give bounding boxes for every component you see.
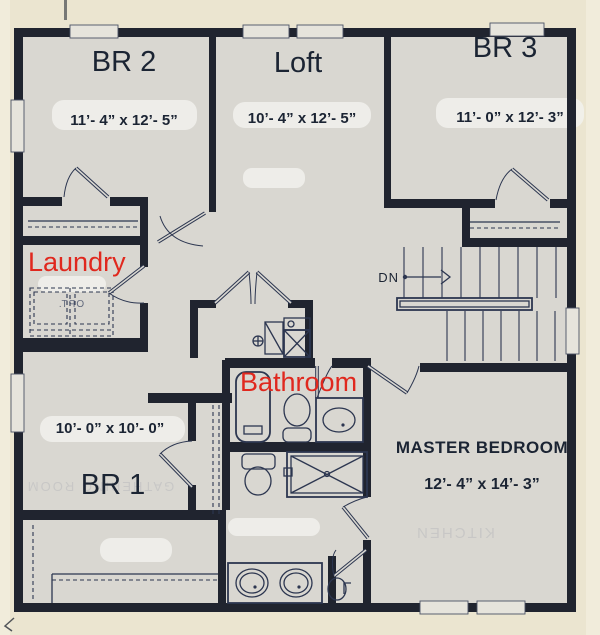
window <box>70 25 118 38</box>
master-bedroom-label: MASTER BEDROOM <box>396 438 568 457</box>
floor-plan-drawing: OPT. DN <box>0 0 600 635</box>
br1-dims: 10’- 0” x 10’- 0” <box>56 420 164 437</box>
paper-edge-left <box>0 0 10 635</box>
drain-icon <box>253 336 263 346</box>
window <box>477 601 525 614</box>
br1-label: BR 1 <box>81 469 145 501</box>
window <box>11 100 24 152</box>
ghost-text-master: KITCHEN <box>415 524 495 541</box>
window <box>566 308 579 354</box>
floor-plan-page: OPT. DN <box>0 0 600 635</box>
master-bedroom-dims: 12’- 4” x 14’- 3” <box>424 476 540 493</box>
bathroom-label: Bathroom <box>240 367 357 397</box>
loft-label: Loft <box>274 47 322 79</box>
window <box>11 374 24 432</box>
stairs-dn-label: DN <box>378 270 399 285</box>
br2-label: BR 2 <box>92 46 156 78</box>
washer-dryer-opt-label: OPT. <box>58 299 84 310</box>
paper-edge-right <box>586 0 600 635</box>
br3-dims: 11’- 0” x 12’- 3” <box>456 109 564 126</box>
br2-dims: 11’- 4” x 12’- 5” <box>70 112 178 129</box>
window <box>243 25 289 38</box>
br3-label: BR 3 <box>473 32 537 64</box>
stair-rail <box>397 298 532 310</box>
window <box>297 25 343 38</box>
laundry-label: Laundry <box>28 247 126 277</box>
window <box>420 601 468 614</box>
loft-dims: 10’- 4” x 12’- 5” <box>248 110 356 127</box>
fold-mark <box>64 0 67 20</box>
